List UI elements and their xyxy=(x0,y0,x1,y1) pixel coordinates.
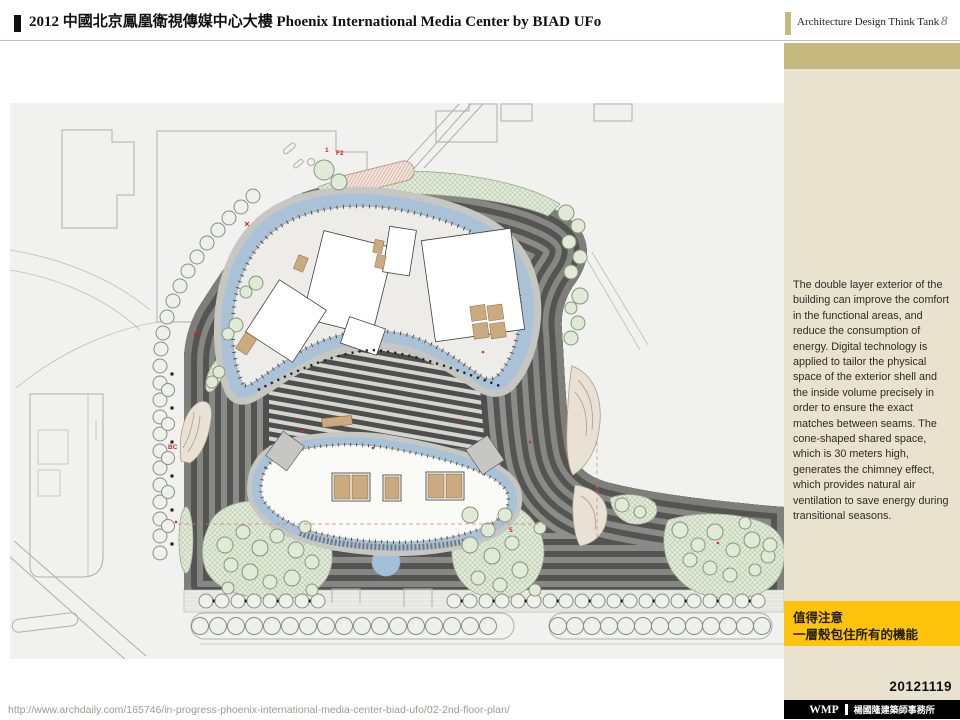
header-brand-bar xyxy=(785,12,791,35)
slide: 2012 中國北京鳳凰衛視傳媒中心大樓 Phoenix Internationa… xyxy=(0,0,960,720)
page-number: 8 xyxy=(941,13,948,29)
sidebar-top-band xyxy=(784,43,960,69)
label-gate-5: 5 xyxy=(509,527,513,534)
footer-firm-name: 楊國隆建築師事務所 xyxy=(854,703,935,716)
header-divider xyxy=(0,40,960,41)
highlight-line-2: 一層殼包住所有的機能 xyxy=(793,624,918,643)
sidebar-paragraph: The double layer exterior of the buildin… xyxy=(793,278,953,525)
label-road-1: 1 xyxy=(325,147,329,154)
sidebar-highlight-box: 值得注意 一層殼包住所有的機能 xyxy=(784,601,960,646)
source-url: http://www.archdaily.com/165746/in-progr… xyxy=(8,704,510,716)
footer-brand-bar: WMP 楊國隆建築師事務所 xyxy=(784,700,960,719)
label-ramp-bc: BC xyxy=(168,444,178,451)
site-plan-image: 1 F2 BC 5 xyxy=(10,103,784,659)
sidebar: The double layer exterior of the buildin… xyxy=(784,43,960,700)
header-brand: Architecture Design Think Tank xyxy=(797,16,939,28)
footer-divider xyxy=(845,704,848,715)
header-accent-tab xyxy=(14,15,21,32)
south-building xyxy=(252,431,517,551)
footer-logo: WMP xyxy=(809,704,838,716)
site-plan-svg: 1 F2 BC 5 xyxy=(10,103,784,659)
date-stamp: 20121119 xyxy=(889,679,952,694)
label-road-f2: F2 xyxy=(336,150,344,157)
page-title: 2012 中國北京鳳凰衛視傳媒中心大樓 Phoenix Internationa… xyxy=(29,10,759,31)
